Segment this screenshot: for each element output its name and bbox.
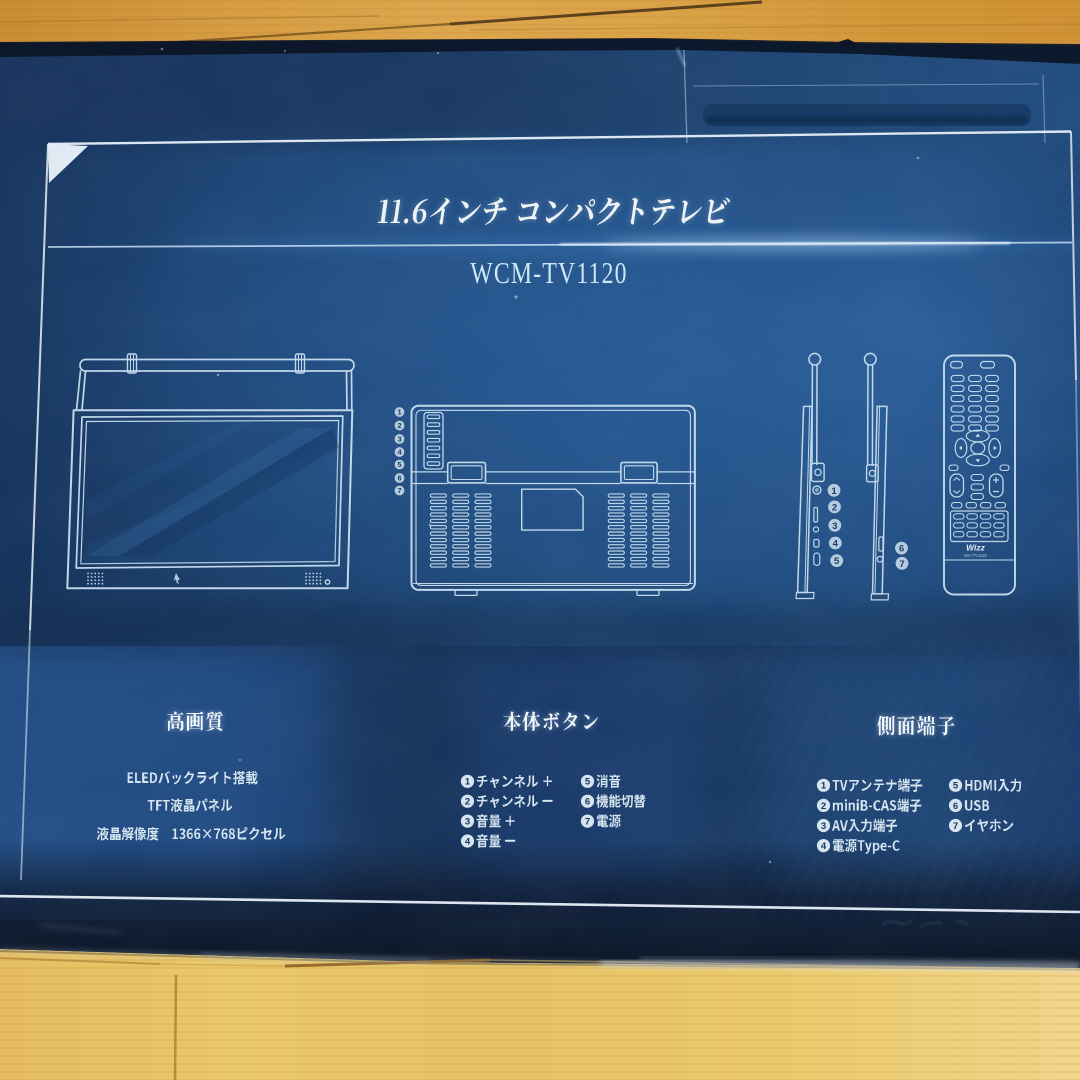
svg-text:WC-TV1120: WC-TV1120 <box>964 553 987 558</box>
svg-text:3: 3 <box>832 521 837 532</box>
svg-text:1: 1 <box>821 781 827 792</box>
svg-text:7: 7 <box>899 559 904 570</box>
svg-text:1: 1 <box>831 486 837 497</box>
svg-text:2: 2 <box>832 502 837 513</box>
svg-text:2: 2 <box>397 421 401 430</box>
svg-text:5: 5 <box>953 781 959 792</box>
svg-text:6: 6 <box>585 797 590 808</box>
svg-text:Wizz: Wizz <box>966 543 986 553</box>
svg-text:6: 6 <box>899 544 904 555</box>
svg-text:6: 6 <box>397 474 401 483</box>
svg-text:5: 5 <box>585 777 591 788</box>
svg-text:6: 6 <box>953 801 958 812</box>
svg-text:3: 3 <box>397 435 401 444</box>
svg-text:5: 5 <box>834 556 840 567</box>
svg-text:2: 2 <box>465 797 470 808</box>
svg-text:4: 4 <box>833 539 839 550</box>
svg-text:5: 5 <box>397 460 401 469</box>
svg-text:7: 7 <box>397 486 401 495</box>
svg-text:7: 7 <box>585 817 590 828</box>
svg-text:1: 1 <box>397 408 401 417</box>
svg-text:2: 2 <box>821 801 826 812</box>
svg-text:3: 3 <box>821 821 826 832</box>
svg-text:1: 1 <box>465 777 471 788</box>
svg-text:WCM-TV1120: WCM-TV1120 <box>470 256 627 289</box>
svg-text:4: 4 <box>821 841 827 852</box>
svg-text:7: 7 <box>953 821 958 832</box>
svg-text:3: 3 <box>465 817 470 828</box>
svg-text:4: 4 <box>465 836 471 847</box>
